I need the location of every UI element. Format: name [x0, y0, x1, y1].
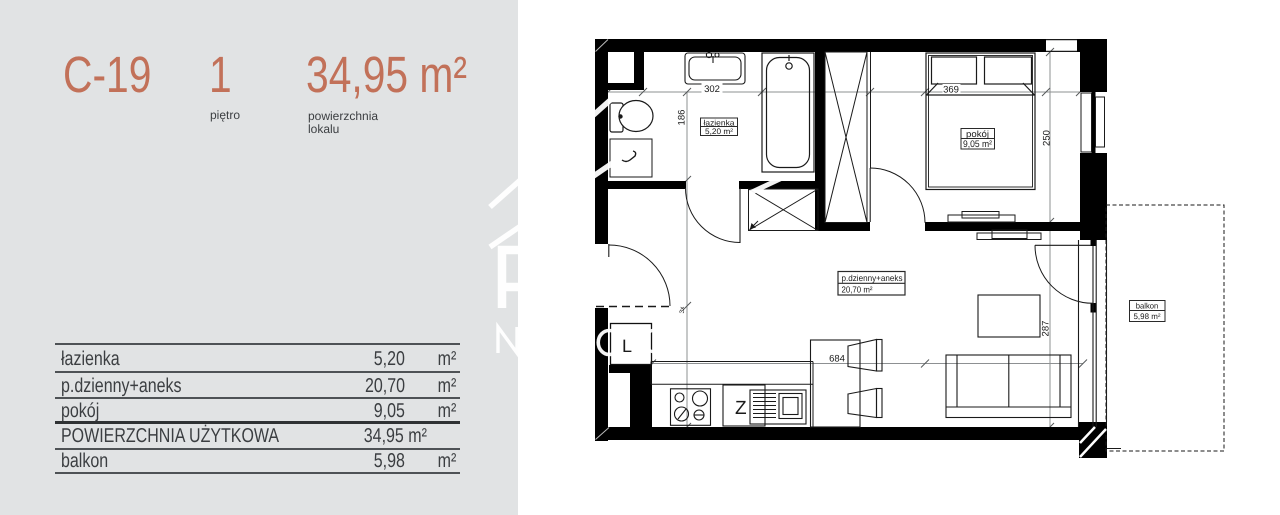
svg-text:3x: 3x	[679, 306, 686, 314]
svg-text:łazienka: łazienka	[704, 118, 736, 127]
svg-text:5,98 m²: 5,98 m²	[1134, 312, 1161, 321]
svg-text:Z: Z	[735, 398, 747, 419]
svg-text:balkon: balkon	[1136, 302, 1159, 311]
svg-text:684: 684	[829, 354, 845, 365]
svg-text:186: 186	[677, 110, 688, 126]
svg-text:302: 302	[704, 84, 720, 95]
svg-text:p.dzienny+aneks: p.dzienny+aneks	[842, 273, 904, 283]
svg-text:20,70 m²: 20,70 m²	[842, 285, 873, 295]
svg-text:250: 250	[1042, 130, 1053, 146]
svg-text:369: 369	[943, 85, 959, 96]
svg-text:5,20 m²: 5,20 m²	[705, 127, 733, 136]
svg-text:287: 287	[1041, 321, 1052, 337]
svg-text:L: L	[622, 336, 632, 356]
svg-text:9,05 m²: 9,05 m²	[963, 139, 992, 150]
svg-text:pokój: pokój	[966, 129, 989, 139]
